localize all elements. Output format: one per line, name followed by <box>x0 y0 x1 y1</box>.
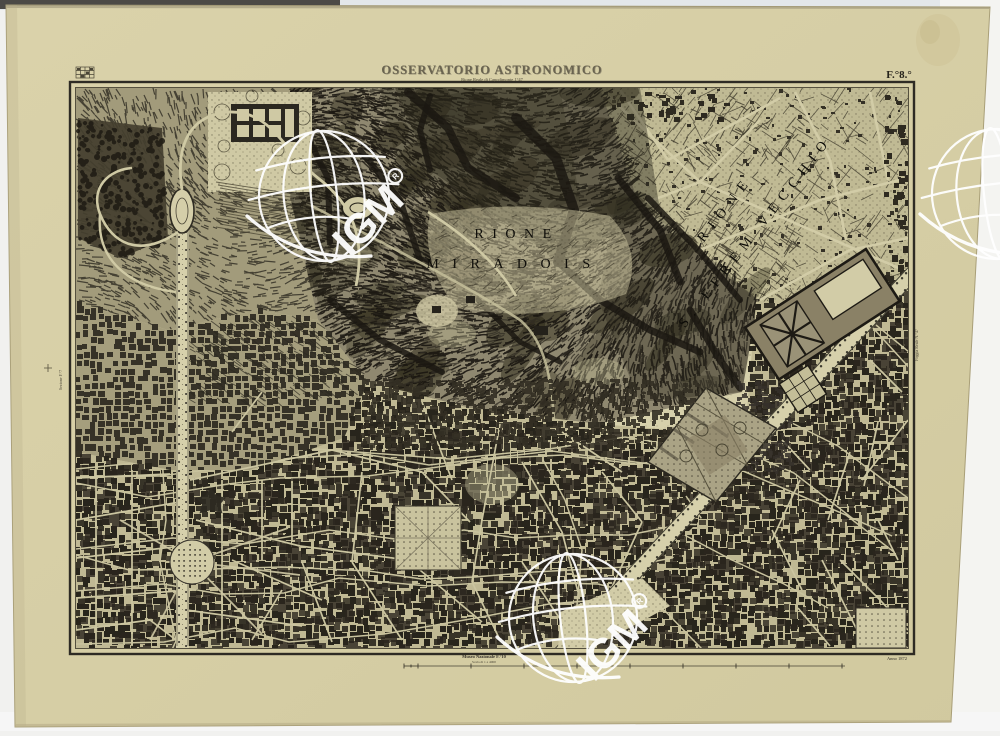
svg-text:Scala di 1 a 4000: Scala di 1 a 4000 <box>472 660 496 664</box>
svg-text:Foggia Reale N.°47: Foggia Reale N.°47 <box>914 329 919 361</box>
svg-text:RIONE: RIONE <box>474 227 559 242</box>
svg-text:F.°8.°: F.°8.° <box>886 69 912 81</box>
svg-text:Anno 1872: Anno 1872 <box>887 656 907 661</box>
svg-text:OSSERVATORIO ASTRONOMICO: OSSERVATORIO ASTRONOMICO <box>381 63 602 77</box>
svg-text:Rione Reale di Capodimonte 1°4: Rione Reale di Capodimonte 1°47 <box>461 77 524 82</box>
svg-text:Sezione F.°7: Sezione F.°7 <box>58 370 63 390</box>
svg-text:MIRADOIS: MIRADOIS <box>426 257 603 272</box>
svg-text:Museo Nazionale F.°10: Museo Nazionale F.°10 <box>462 654 507 659</box>
